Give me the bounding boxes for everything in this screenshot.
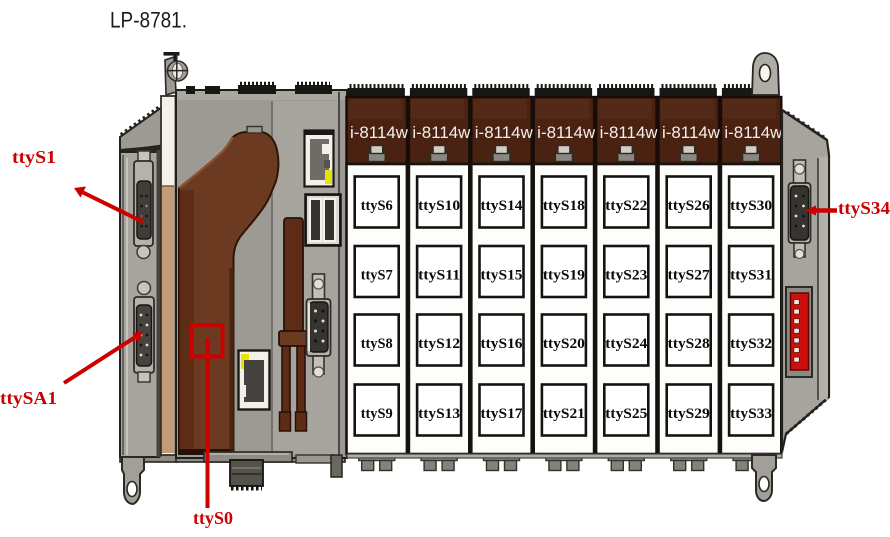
svg-text:ttyS34: ttyS34: [838, 198, 890, 218]
svg-text:ttyS14: ttyS14: [481, 198, 524, 214]
svg-text:ttyS28: ttyS28: [668, 336, 710, 352]
svg-text:ttyS16: ttyS16: [481, 336, 524, 352]
svg-text:ttyS32: ttyS32: [730, 336, 772, 352]
svg-text:ttyS15: ttyS15: [481, 268, 523, 284]
svg-text:ttyS12: ttyS12: [418, 336, 460, 352]
svg-text:i-8114w: i-8114w: [662, 124, 720, 142]
svg-text:ttyS1: ttyS1: [12, 147, 56, 167]
svg-text:ttyS30: ttyS30: [730, 198, 772, 214]
svg-text:ttyS6: ttyS6: [361, 198, 393, 214]
svg-text:ttyS26: ttyS26: [668, 198, 711, 214]
svg-text:ttyS24: ttyS24: [605, 336, 648, 352]
svg-text:ttyS13: ttyS13: [418, 406, 460, 422]
svg-text:ttyS17: ttyS17: [481, 406, 524, 422]
svg-text:ttyS27: ttyS27: [668, 268, 711, 284]
svg-text:ttyS18: ttyS18: [543, 198, 585, 214]
svg-text:i-8114w: i-8114w: [350, 124, 408, 142]
svg-text:LP-8781.: LP-8781.: [110, 8, 187, 33]
svg-text:ttyS25: ttyS25: [605, 406, 647, 422]
svg-text:ttyS29: ttyS29: [668, 406, 710, 422]
svg-text:i-8114w: i-8114w: [537, 124, 595, 142]
svg-text:ttyS20: ttyS20: [543, 336, 585, 352]
svg-text:ttyS10: ttyS10: [418, 198, 460, 214]
svg-text:ttyS22: ttyS22: [605, 198, 647, 214]
svg-text:ttyS9: ttyS9: [361, 406, 393, 422]
svg-text:ttyS31: ttyS31: [730, 268, 772, 284]
svg-text:ttyS11: ttyS11: [418, 268, 460, 284]
svg-text:i-8114w: i-8114w: [475, 124, 533, 142]
svg-text:ttyS23: ttyS23: [605, 268, 647, 284]
svg-text:i-8114w: i-8114w: [724, 124, 782, 142]
svg-text:ttySA1: ttySA1: [0, 388, 57, 408]
svg-text:i-8114w: i-8114w: [412, 124, 470, 142]
svg-text:ttyS21: ttyS21: [543, 406, 585, 422]
svg-text:ttyS19: ttyS19: [543, 268, 585, 284]
svg-text:ttyS7: ttyS7: [361, 268, 393, 284]
svg-text:i-8114w: i-8114w: [600, 124, 658, 142]
svg-text:ttyS8: ttyS8: [361, 336, 393, 352]
svg-text:ttyS0: ttyS0: [193, 508, 233, 528]
svg-text:ttyS33: ttyS33: [730, 406, 772, 422]
